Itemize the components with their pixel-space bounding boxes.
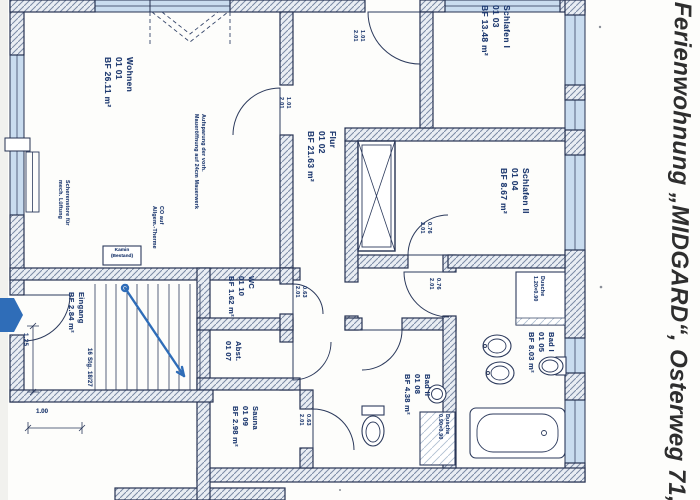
room-name: Wohnen [124, 57, 135, 108]
washbasin-2 [486, 362, 514, 384]
room-label-schlafen1: Schlafen I 01 03 BF 13.48 m² [479, 5, 512, 56]
room-label-wohnen: Wohnen 01 01 BF 26.11 m² [102, 57, 135, 108]
flur-top-door-arc [368, 12, 420, 64]
room-label-sauna: Sauna 01 09 BF 2.98 m² [231, 406, 260, 447]
room-id: 01 05 [537, 332, 547, 373]
room-area: BF 1.62 m² [227, 276, 237, 317]
dim-entry-depth: 1.25 [22, 333, 29, 346]
room-label-abstell: Abst. 01 07 [224, 341, 244, 361]
wohnen-door-arc [233, 88, 280, 135]
staircase [95, 284, 200, 390]
margin-title-prefix: Ferienwohnung [667, 2, 696, 193]
entry-arrow [0, 298, 23, 332]
bathtub [470, 408, 565, 458]
toilet-bad2 [362, 416, 384, 446]
room-label-bad1: Bad I 01 05 BF 8.03 m² [527, 332, 556, 373]
room-area: BF 2.84 m² [67, 292, 77, 333]
bad2-door-arc [362, 330, 402, 370]
room-label-eingang: Eingang BF 2.84 m² [67, 292, 87, 333]
room-name: Flur [327, 131, 338, 182]
room-name: Schlafen I [501, 5, 512, 56]
room-label-bad2: Bad II 01 08 BF 4.38 m² [403, 374, 432, 415]
door-dim-schlafen2: 0.76 2.01 [419, 222, 432, 234]
room-label-wc: WC 01 10 BF 1.62 m² [227, 276, 256, 317]
room-id: 01 09 [241, 406, 251, 447]
room-name: WC [246, 276, 256, 317]
schlafen2-door-arc [408, 215, 448, 255]
room-id: 01 01 [113, 57, 124, 108]
room-label-flur: Flur 01 02 BF 21.63 m² [305, 131, 338, 182]
room-area: BF 8.67 m² [498, 168, 509, 214]
room-name: Schlafen II [520, 168, 531, 214]
margin-title-name: „MIDGARD“, [665, 193, 694, 343]
door-dim-wc: 0.63 2.01 [294, 286, 307, 298]
radiator [26, 152, 39, 212]
annotation-therme: CO auf Allgem.-Therme [149, 206, 164, 249]
sauna-door-arc [313, 409, 354, 450]
room-id: 01 10 [237, 276, 247, 317]
annotation-shower-bad2: Dusche 0.90×0.90 [435, 414, 450, 440]
margin-title: Ferienwohnung „MIDGARD“, Osterweg 71, We… [661, 2, 696, 500]
room-id: 01 08 [413, 374, 423, 415]
annotation-shower-bad1: Dusche 1.20×0.90 [530, 276, 545, 302]
bad1-door-arc [404, 272, 449, 317]
room-area: BF 13.48 m² [479, 5, 490, 56]
door-dim-sauna: 0.63 2.01 [298, 414, 311, 426]
room-id: 01 02 [316, 131, 327, 182]
washbasin-1 [483, 335, 511, 357]
room-area: BF 26.11 m² [102, 57, 113, 108]
annotation-window-note: Scherenstore für mech. Lüftung [55, 180, 70, 226]
floorplan-scan-page: Wohnen 01 01 BF 26.11 m² Flur 01 02 BF 2… [0, 0, 700, 500]
page-edge [0, 0, 8, 500]
margin-title-suffix: Osterweg 71, Wenni [662, 342, 692, 500]
entry-door-arc [24, 295, 70, 341]
room-area: BF 2.98 m² [231, 406, 241, 447]
door-dim-wohnen: 1.01 2.01 [278, 97, 291, 109]
annotation-stairs: 16 Stg. 18/27 [85, 348, 93, 387]
installation-shaft [358, 141, 395, 251]
roof-dashed-lines [150, 12, 230, 45]
room-label-schlafen2: Schlafen II 01 04 BF 8.67 m² [498, 168, 531, 214]
annotation-kamin: Kamin (Bestand) [104, 248, 140, 260]
room-name: Sauna [250, 406, 260, 447]
dim-entry-width: 1.00 [36, 408, 48, 415]
room-name: Abst. [233, 341, 243, 361]
room-name: Bad I [546, 332, 556, 373]
door-dim-bad1: 0.76 2.01 [428, 278, 441, 290]
room-area: BF 21.63 m² [305, 131, 316, 182]
room-name: Eingang [76, 292, 86, 333]
room-area: BF 4.38 m² [403, 374, 413, 415]
window-sill [5, 138, 30, 151]
abstell-door-arc [293, 342, 331, 380]
room-area: BF 8.03 m² [527, 332, 537, 373]
room-id: 01 03 [490, 5, 501, 56]
room-name: Bad II [422, 374, 432, 415]
room-id: 01 07 [224, 341, 234, 361]
door-dim-flur-top: 1.01 2.01 [352, 30, 365, 42]
room-id: 01 04 [509, 168, 520, 214]
annotation-wall-note: Aufsparung der vorh. Maueröffnung auf 24… [191, 114, 206, 209]
stair-direction-line [122, 285, 184, 376]
